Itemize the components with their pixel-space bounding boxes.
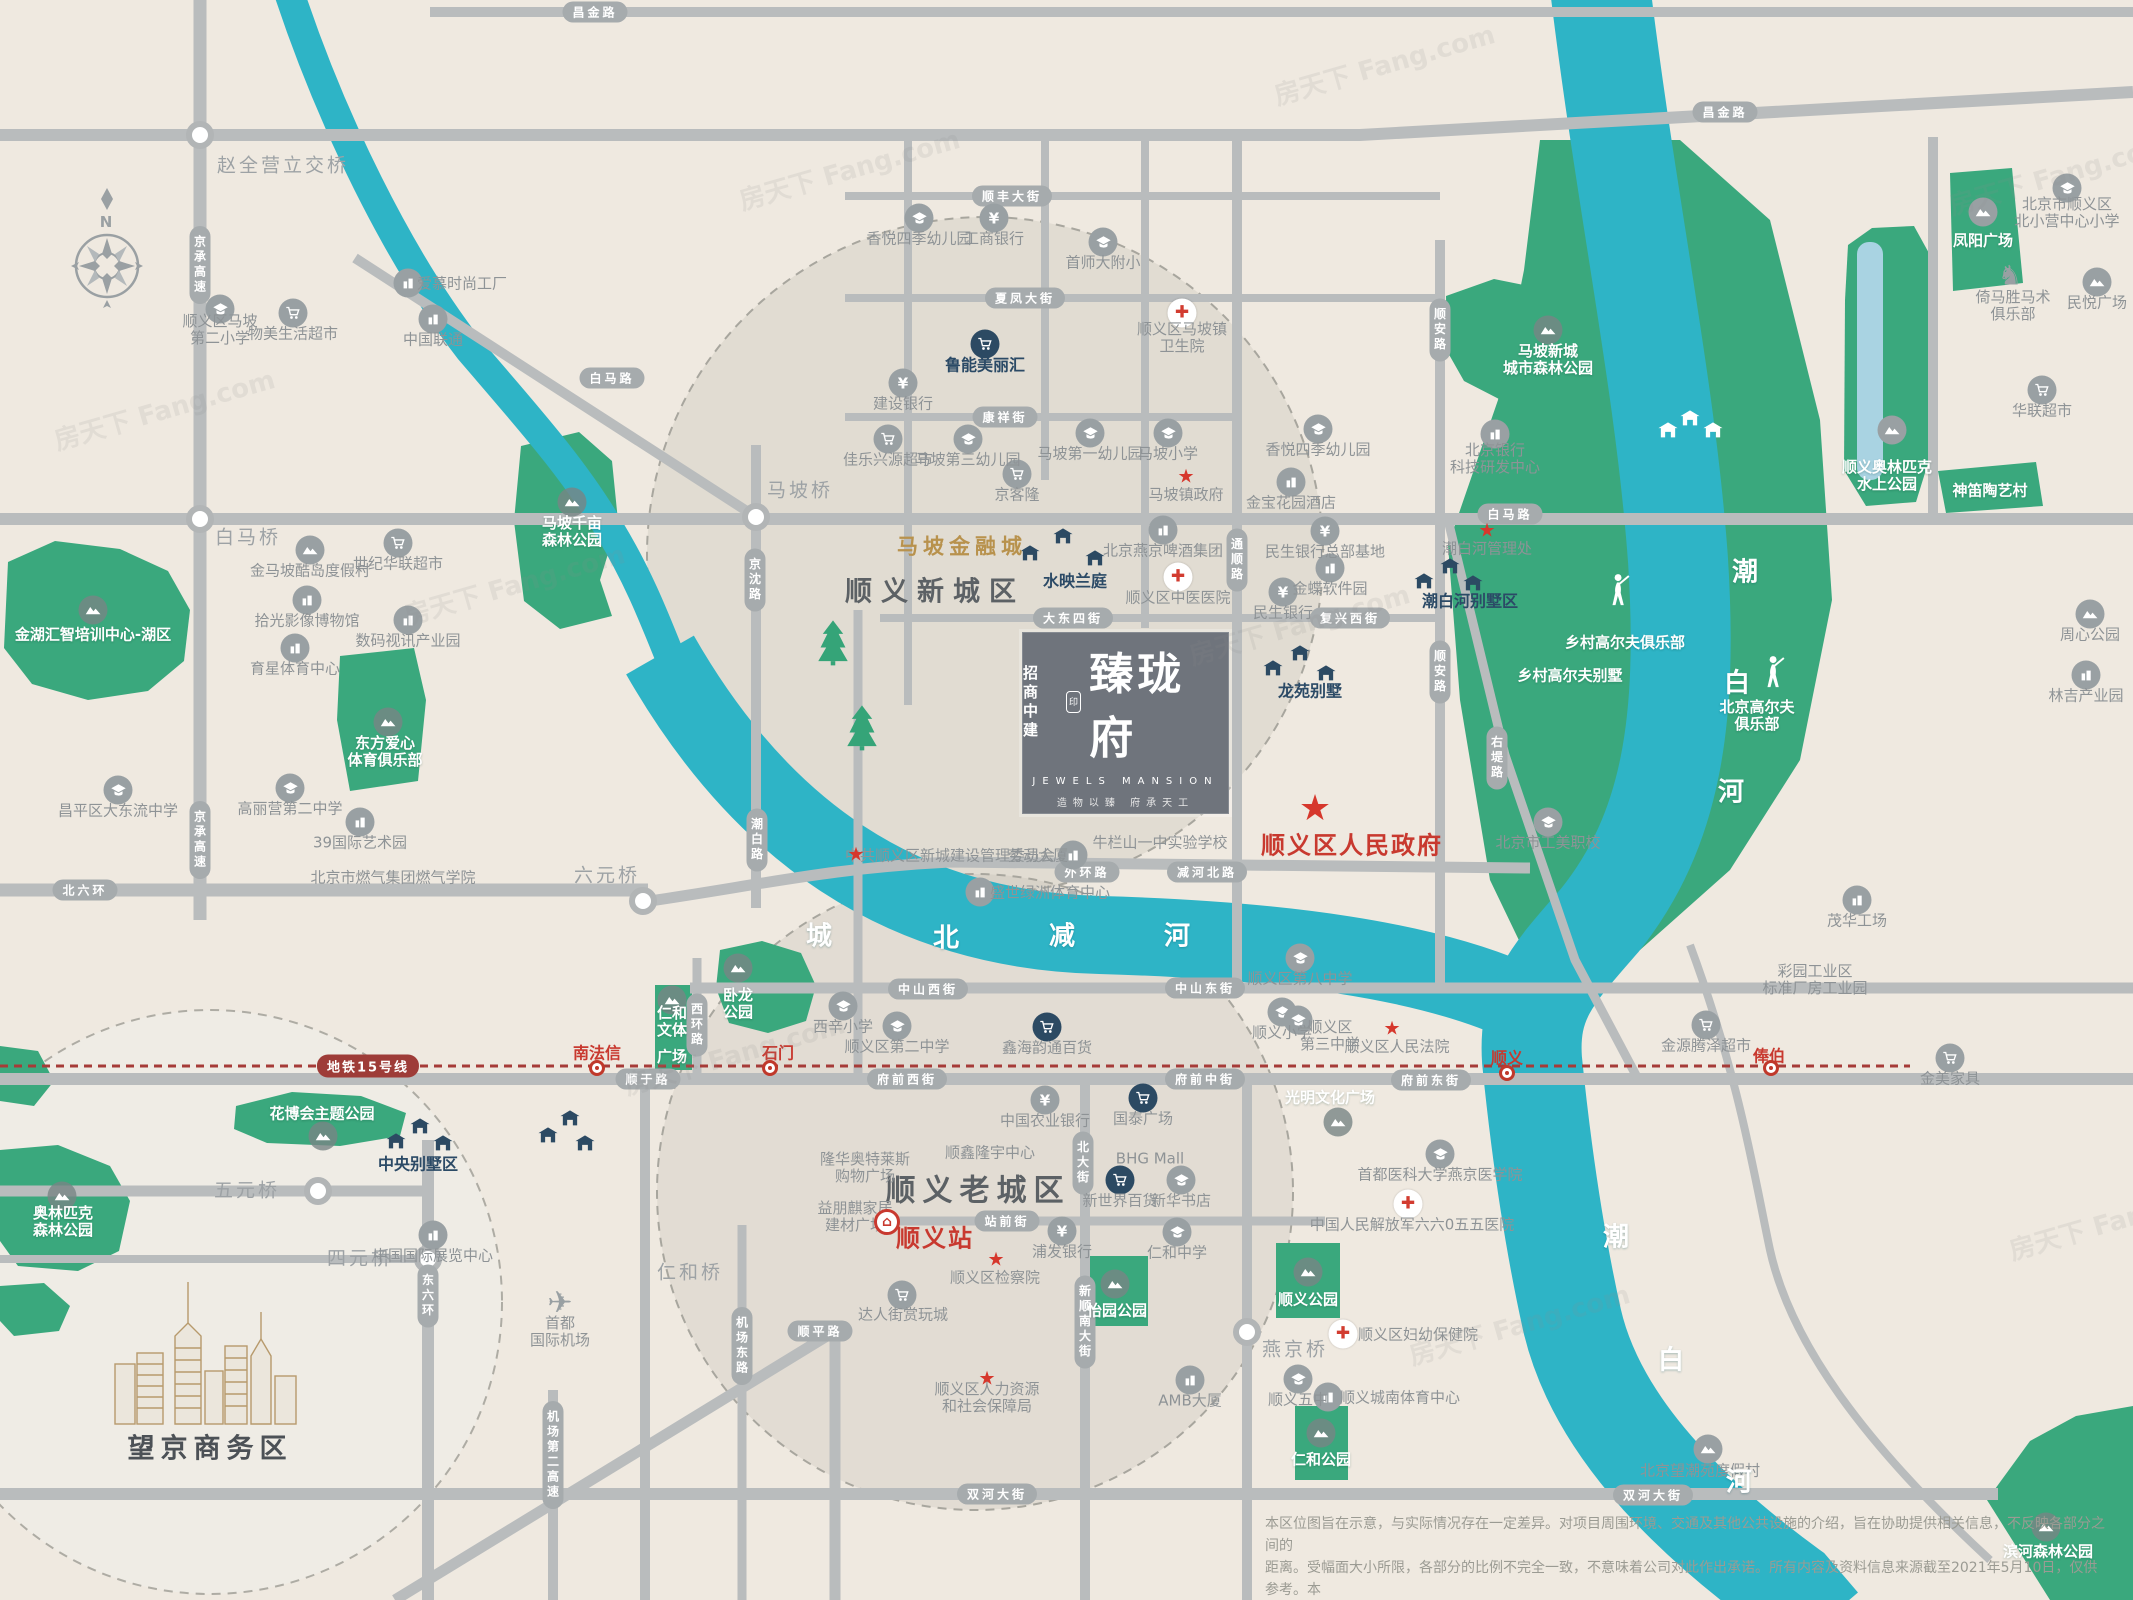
school-icon [276, 774, 305, 803]
mountain-icon [1969, 198, 1998, 227]
villa-icon [1263, 660, 1284, 679]
poi-label: 新世界百货 [1082, 1193, 1157, 1210]
school-icon [1089, 228, 1118, 257]
mountainW-icon [558, 488, 587, 517]
poi-label: 仁和文体 [657, 1005, 687, 1039]
poi-label: 顺义老城区 [886, 1183, 1071, 1200]
poi-label: 顺义区检察院 [950, 1270, 1040, 1287]
poi-label: 马坡桥 [767, 483, 833, 500]
school-icon [905, 204, 934, 233]
poi-label: 香悦四季幼儿园 [866, 231, 971, 248]
road-badge: 夏凤大街 [985, 288, 1065, 309]
poi-label: 东方爱心体育俱乐部 [347, 735, 422, 769]
villa-icon [1680, 410, 1701, 429]
road-badge: 大东四街 [1033, 608, 1113, 629]
poi-label: 达人街赏玩城 [858, 1307, 948, 1324]
poi-label: 白 [1724, 676, 1752, 693]
bank-icon: ¥ [889, 369, 918, 398]
metro-station-label: 南法信 [573, 1045, 621, 1062]
poi-label: 北京高尔夫俱乐部 [1719, 699, 1794, 733]
red-star-icon: ★ [1383, 1020, 1400, 1039]
road-badge: 京承高速 [190, 226, 211, 304]
poi-label: 北京银行科技研发中心 [1450, 442, 1540, 476]
school-icon [883, 1012, 912, 1041]
poi-label: 昌平区大东流中学 [58, 803, 178, 820]
red-star-icon: ★ [1177, 468, 1194, 487]
mountain-icon [296, 536, 325, 565]
building-icon [2072, 661, 2101, 690]
road-badge: 中山西街 [888, 979, 968, 1000]
building-icon [346, 808, 375, 837]
poi-label: 建设银行 [873, 396, 933, 413]
cart-icon [384, 529, 413, 558]
poi-label: 顺义区马坡镇卫生院 [1137, 321, 1227, 355]
poi-label: 39国际艺术园 [313, 835, 407, 852]
mountainW-icon [374, 708, 403, 737]
school-icon [1286, 944, 1315, 973]
building-icon [419, 1221, 448, 1250]
poi-label: 中国联通 [403, 332, 463, 349]
project-name-en: JEWELS MANSION [1032, 776, 1218, 787]
red-star-icon: ★ [987, 1251, 1004, 1270]
villa-icon [410, 1118, 431, 1137]
road-badge: 顺安路 [1430, 641, 1451, 704]
poi-label: 新华书店 [1151, 1193, 1211, 1210]
mountainW-icon [1534, 316, 1563, 345]
road-badge: 双河大街 [957, 1484, 1037, 1505]
poi-label: 白 [1658, 1353, 1686, 1370]
mountain-icon [1878, 416, 1907, 445]
poi-label: 凤阳广场 [1953, 233, 2013, 250]
poi-label: 神笛陶艺村 [1952, 483, 2027, 500]
school-icon [1076, 419, 1105, 448]
poi-label: 马坡千亩森林公园 [542, 515, 602, 549]
road-badge: 北大街 [1073, 1132, 1094, 1195]
poi-label: 北京燕京啤酒集团 [1103, 543, 1223, 560]
poi-label: 顺鑫隆宇中心 [945, 1145, 1035, 1162]
villa-icon [433, 1135, 454, 1154]
road-badge: 北六环 [52, 880, 117, 901]
poi-label: 赵全营立交桥 [217, 158, 349, 175]
wangjing-skyline-icon [112, 1274, 304, 1426]
compass-icon [60, 186, 154, 312]
villa-icon [1658, 422, 1679, 441]
poi-label: 香悦四季幼儿园 [1265, 442, 1370, 459]
school-icon [1426, 1140, 1455, 1169]
poi-label: 顺义公园 [1278, 1292, 1338, 1309]
mountainW-icon [1324, 1108, 1353, 1137]
villa-icon [538, 1127, 559, 1146]
poi-label: 潮 [1603, 1230, 1631, 1247]
poi-label: 顺义区妇幼保健院 [1358, 1327, 1478, 1344]
cart-icon [1936, 1044, 1965, 1073]
poi-label: 望京商务区 [128, 1441, 293, 1458]
poi-label: 周心公园 [2060, 627, 2120, 644]
poi-label: 盛世绿洲体育中心 [990, 885, 1110, 902]
poi-label: 拾光影像博物馆 [254, 613, 359, 630]
poi-label: 鲁能美丽汇 [945, 357, 1025, 374]
project-logo: 招商 中建 印 臻珑府 JEWELS MANSION 造物以臻 府承天工 [1022, 632, 1229, 814]
poi-label: 顺义城南体育中心 [1340, 1390, 1460, 1407]
poi-label: 中国国际展览中心 [373, 1248, 493, 1265]
mountainW-icon [309, 1122, 338, 1151]
cart-icon [2028, 376, 2057, 405]
road-badge: 昌金路 [1692, 102, 1757, 123]
poi-label: 爱慕时尚工厂 [417, 276, 507, 293]
hospital-icon: ✚ [1394, 1190, 1423, 1219]
poi-label: 首师大附小 [1065, 255, 1140, 272]
poi-label: BHG Mall [1116, 1151, 1184, 1168]
poi-label: 国泰广场 [1113, 1111, 1173, 1128]
villa-icon [1290, 645, 1311, 664]
poi-label: 北 [933, 931, 961, 948]
metro-station-label: 石门 [762, 1045, 794, 1062]
poi-label: 马坡小学 [1138, 446, 1198, 463]
road-badge: 复兴西街 [1310, 608, 1390, 629]
poi-label: 六元桥 [574, 868, 640, 885]
poi-label: 马坡新城城市森林公园 [1503, 343, 1593, 377]
road-badge: 西环路 [687, 994, 708, 1057]
cart-icon [279, 299, 308, 328]
building-icon [293, 586, 322, 615]
villa-icon [575, 1135, 596, 1154]
poi-label: 民生银行总部基地 [1265, 544, 1385, 561]
poi-label: 高丽营第二中学 [237, 801, 342, 818]
villa-icon [1703, 422, 1724, 441]
road-badge: 白马路 [579, 368, 644, 389]
red-star-icon: ★ [1478, 522, 1495, 541]
road-badge: 顺安路 [1430, 299, 1451, 362]
bank-icon: ¥ [1031, 1086, 1060, 1115]
building-icon [281, 634, 310, 663]
poi-label: 茂华工场 [1827, 913, 1887, 930]
poi-label: 浦发银行 [1032, 1244, 1092, 1261]
poi-label: 金宝花园酒店 [1246, 495, 1336, 512]
poi-label: 金蝶软件园 [1292, 581, 1367, 598]
train-station-icon: ⌂ [874, 1209, 900, 1235]
poi-label: 顺义站 [896, 1231, 974, 1248]
seal-icon: 印 [1066, 691, 1082, 713]
building-icon [1149, 516, 1178, 545]
road-badge: 府前西街 [867, 1069, 947, 1090]
disclaimer-text: 本区位图旨在示意，与实际情况存在一定差异。对项目周围环境、交通及其他公共设施的介… [1265, 1513, 2105, 1600]
villa-icon [1053, 528, 1074, 547]
bank-icon: ¥ [980, 204, 1009, 233]
school-icon [1304, 415, 1333, 444]
poi-label: 彩园工业区标准厂房工业园 [1762, 963, 1867, 997]
metro-station-icon [1763, 1060, 1779, 1076]
tree-icon [816, 620, 850, 669]
poi-label: 中国农业银行 [1000, 1113, 1090, 1130]
map-canvas: N 招商 中建 印 臻珑府 JEWELS MANSION 造物以臻 府承天工 地… [0, 0, 2133, 1600]
mountain-icon [2083, 268, 2112, 297]
poi-label: 首都国际机场 [530, 1315, 590, 1349]
cart-icon [874, 425, 903, 454]
metro-station-label: 顺义 [1491, 1050, 1523, 1067]
poi-label: 顺义区第二中学 [844, 1039, 949, 1056]
poi-label: 乡村高尔夫别墅 [1517, 668, 1622, 685]
poi-label: 顺义区中医医院 [1125, 590, 1230, 607]
poi-label: 中国人民解放军六六0五五医院 [1310, 1217, 1515, 1234]
compass-north-label: N [100, 213, 113, 231]
poi-label: 五元桥 [214, 1183, 280, 1200]
school-icon [829, 992, 858, 1021]
poi-label: 顺义新城区 [845, 584, 1025, 601]
road-badge: 机场东路 [732, 1307, 753, 1385]
red-star-icon: ★ [1299, 791, 1331, 827]
cartD-icon [1106, 1166, 1135, 1195]
poi-label: AMB大厦 [1158, 1393, 1222, 1410]
poi-label: 城 [806, 929, 834, 946]
poi-label: 减 [1049, 929, 1077, 946]
school-icon [1167, 1166, 1196, 1195]
poi-label: 顺义区人民法院 [1344, 1039, 1449, 1056]
metro-line15-badge: 地铁15号线 [317, 1055, 419, 1078]
poi-label: 顺义奥林匹克水上公园 [1842, 459, 1932, 493]
school-icon [104, 776, 133, 805]
school-icon [1534, 808, 1563, 837]
villa-icon [1414, 573, 1435, 592]
road-badge: 新顺南大街 [1075, 1276, 1096, 1369]
poi-label: 劳动大厦 [1008, 848, 1068, 865]
road-badge: 顺平路 [787, 1321, 852, 1342]
poi-label: 金湖汇智培训中心-湖区 [15, 627, 171, 644]
poi-label: 马坡第三幼儿园 [915, 452, 1020, 469]
poi-label: 数码视讯产业园 [355, 633, 460, 650]
poi-label: 中央别墅区 [378, 1156, 458, 1173]
poi-label: 北京市工美职校 [1495, 835, 1600, 852]
poi-label: 河 [1718, 785, 1746, 802]
tree-icon [845, 705, 879, 754]
poi-label: 鑫海韵通百货 [1002, 1040, 1092, 1057]
hospital-icon: ✚ [1164, 563, 1193, 592]
road-badge: 府前中街 [1165, 1069, 1245, 1090]
metro-station-icon [762, 1060, 778, 1076]
villa-icon [386, 1133, 407, 1152]
poi-label: 马坡镇政府 [1148, 487, 1223, 504]
cartD-icon [1033, 1013, 1062, 1042]
road-badge: 潮白路 [747, 809, 768, 872]
road-badge: 昌金路 [562, 2, 627, 23]
poi-label: 物美生活超市 [248, 326, 338, 343]
poi-label: 林吉产业园 [2048, 688, 2123, 705]
poi-label: 河 [1164, 929, 1192, 946]
poi-label: 水映兰庭 [1043, 573, 1107, 590]
poi-label: 龙苑别墅 [1278, 683, 1342, 700]
mountainW-icon [724, 954, 753, 983]
building-icon [1277, 468, 1306, 497]
mountainW-icon [1101, 1270, 1130, 1299]
mountainW-icon [79, 596, 108, 625]
mountain-icon [2076, 600, 2105, 629]
poi-label: 卧龙公园 [723, 987, 753, 1021]
poi-label: 仁和公园 [1291, 1452, 1351, 1469]
poi-label: 马坡第一幼儿园 [1037, 446, 1142, 463]
poi-label: 顺义区马坡第二小学 [182, 313, 257, 347]
metro-station-icon [1499, 1065, 1515, 1081]
road-badge: 站前街 [974, 1211, 1039, 1232]
mountainW-icon [1294, 1258, 1323, 1287]
golfer-icon [1758, 655, 1786, 689]
poi-label: 花博会主题公园 [269, 1106, 374, 1123]
poi-label: 燕京桥 [1262, 1342, 1328, 1359]
poi-label: 白马桥 [215, 530, 281, 547]
school-icon [1163, 1218, 1192, 1247]
poi-label: 北京市燃气集团燃气学院 [310, 870, 475, 887]
red-star-icon: ★ [847, 846, 864, 865]
building-icon [1176, 1366, 1205, 1395]
road-badge: 东六环 [418, 1265, 439, 1328]
building-icon [394, 606, 423, 635]
poi-label: 金源腾泽超市 [1661, 1038, 1751, 1055]
poi-label: 牛栏山一中实验学校 [1092, 835, 1227, 852]
poi-label: 首都医科大学燕京医学院 [1357, 1167, 1522, 1184]
red-star-icon: ★ [978, 1370, 995, 1389]
poi-label: 西辛小学 [813, 1019, 873, 1036]
poi-label: 隆华奥特莱斯购物广场 [820, 1151, 910, 1185]
building-icon [1843, 886, 1872, 915]
hospital-icon: ✚ [1329, 1320, 1358, 1349]
poi-label: 顺义区第八中学 [1247, 971, 1352, 988]
poi-label: 潮白河别墅区 [1422, 593, 1518, 610]
metro-station-icon [589, 1060, 605, 1076]
poi-label: 怡园公园 [1087, 1303, 1147, 1320]
road-badge: 康祥街 [972, 407, 1037, 428]
horse-icon: ♞ [1998, 261, 2022, 292]
project-tagline: 造物以臻 府承天工 [1057, 794, 1194, 809]
school-icon [1284, 1365, 1313, 1394]
road-badge: 京承高速 [190, 801, 211, 879]
mountain-icon [1694, 1435, 1723, 1464]
poi-label: 民生银行 [1253, 605, 1313, 622]
poi-label: 河 [1726, 1475, 1754, 1492]
road-badge: 府前东街 [1391, 1070, 1471, 1091]
poi-label: 育星体育中心 [250, 661, 340, 678]
golfer-icon [1603, 573, 1631, 607]
poi-label: 倚马胜马术俱乐部 [1975, 289, 2050, 323]
cartD-icon [971, 330, 1000, 359]
poi-label: 世纪华联超市 [353, 556, 443, 573]
school-icon [954, 425, 983, 454]
road-badge: 京沈路 [745, 549, 766, 612]
road-badge: 中山东街 [1165, 978, 1245, 999]
poi-label: 潮 [1732, 565, 1760, 582]
project-brand: 招商 中建 [1023, 664, 1058, 740]
poi-label: 工商银行 [964, 231, 1024, 248]
poi-label: 金美家具 [1920, 1071, 1980, 1088]
poi-label: 乡村高尔夫俱乐部 [1565, 635, 1685, 652]
poi-label: 北京市顺义区北小营中心小学 [2014, 196, 2119, 230]
poi-label: 顺义五中 [1268, 1392, 1328, 1409]
poi-label: 仁和中学 [1147, 1245, 1207, 1262]
road-badge: 顺丰大街 [972, 186, 1052, 207]
poi-label: 京客隆 [994, 487, 1039, 504]
poi-label: 华联超市 [2012, 403, 2072, 420]
villa-icon [1440, 558, 1461, 577]
road-badge: 右堤路 [1487, 727, 1508, 790]
cart-icon [1692, 1011, 1721, 1040]
poi-label: 顺义区人民政府 [1261, 838, 1443, 855]
school-icon [1154, 419, 1183, 448]
road-badge: 顺于路 [615, 1069, 680, 1090]
poi-label: 仁和桥 [657, 1265, 723, 1282]
bank-icon: ¥ [1311, 517, 1340, 546]
poi-label: 广场 [657, 1049, 687, 1066]
road-badge: 减河北路 [1167, 862, 1247, 883]
road-badge: 通顺路 [1227, 529, 1248, 592]
road-badge: 机场第二高速 [543, 1401, 564, 1509]
project-name: 臻珑府 [1089, 638, 1228, 766]
road-badge: 双河大街 [1613, 1485, 1693, 1506]
mountainW-icon [1307, 1419, 1336, 1448]
cartD-icon [1129, 1084, 1158, 1113]
building-icon [419, 305, 448, 334]
poi-label: 民悦广场 [2067, 295, 2127, 312]
villa-icon [560, 1110, 581, 1129]
poi-label: 马坡金融城 [897, 539, 1027, 556]
poi-label: 光明文化广场 [1285, 1090, 1375, 1107]
poi-label: 潮白河管理处 [1442, 541, 1532, 558]
bank-icon: ¥ [1048, 1217, 1077, 1246]
poi-label: 奥林匹克森林公园 [33, 1205, 93, 1239]
